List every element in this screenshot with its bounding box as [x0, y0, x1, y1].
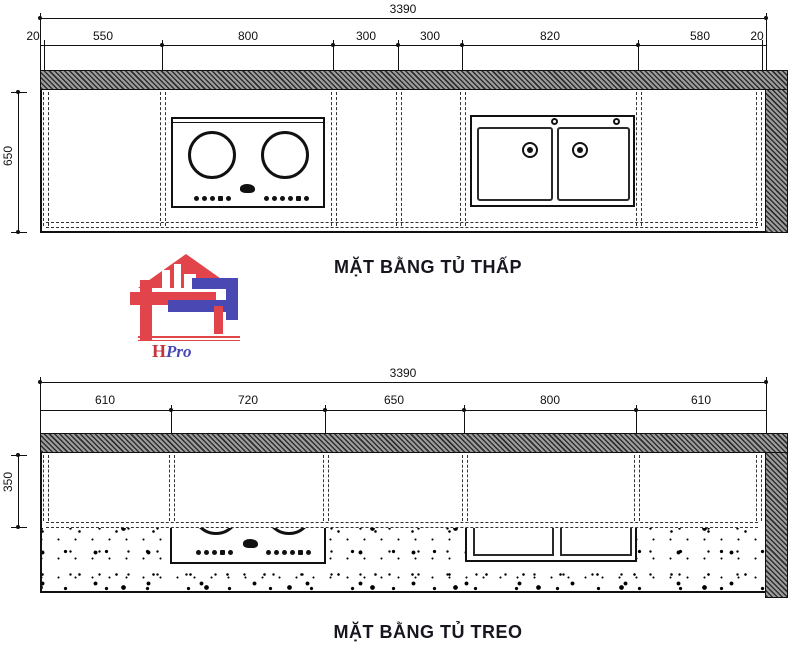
cabinet-divider — [160, 92, 166, 226]
faucet-hole — [613, 118, 620, 125]
burner-circle — [265, 528, 313, 535]
drain-center — [577, 147, 583, 153]
segment-dimension-line — [40, 410, 766, 411]
control-dot — [204, 550, 209, 555]
segment-dimension-label: 580 — [690, 30, 710, 43]
countertop-hatch-band — [40, 433, 788, 453]
extension-line — [44, 40, 45, 70]
control-dot — [202, 196, 207, 201]
cabinet-divider — [169, 455, 175, 521]
cabinet-divider — [396, 92, 402, 226]
sink-bowl — [557, 127, 630, 201]
control-dot — [280, 196, 285, 201]
cabinet-divider — [462, 455, 468, 521]
cabinet-divider — [636, 92, 642, 226]
logo-p-side — [226, 278, 238, 320]
dimension-tick — [462, 408, 466, 412]
dimension-tick — [331, 43, 335, 47]
logo-accent-bar — [214, 306, 223, 334]
logo-text-pro: Pro — [166, 342, 192, 361]
control-dot — [266, 550, 271, 555]
segment-dimension-label: 300 — [356, 30, 376, 43]
dimension-tick — [16, 453, 20, 457]
logo-p-bottom — [168, 300, 238, 312]
drawing-title-low: MẶT BẰNG TỦ THẤP — [278, 257, 578, 278]
segment-dimension-label: 610 — [95, 394, 115, 407]
segment-dimension-label: 610 — [691, 394, 711, 407]
logo-text: HPro — [152, 342, 192, 362]
control-dot — [282, 550, 287, 555]
cabinet-divider — [43, 455, 49, 521]
segment-dimension-label: 820 — [540, 30, 560, 43]
segment-dimension-line — [40, 45, 766, 46]
dimension-tick — [160, 43, 164, 47]
cabinet-divider — [323, 455, 329, 521]
dimension-tick — [764, 380, 768, 384]
control-dot — [218, 196, 223, 201]
logo-h-stem — [140, 280, 152, 340]
cabinet-divider — [634, 455, 640, 521]
logo-skyline-cutout — [162, 270, 170, 288]
control-dot — [272, 196, 277, 201]
cabinet-carcass — [40, 90, 765, 233]
control-dot — [296, 196, 301, 201]
segment-dimension-label: 720 — [238, 394, 258, 407]
cabinet-divider — [460, 92, 466, 226]
cabinet-bottom-dashed-line — [46, 222, 758, 228]
dimension-tick — [169, 408, 173, 412]
wall-cabinet-row — [40, 453, 765, 528]
height-dimension-label: 650 — [1, 146, 15, 166]
segment-dimension-label: 300 — [420, 30, 440, 43]
drain-center — [527, 147, 533, 153]
control-dot — [196, 550, 201, 555]
cabinet-divider — [756, 92, 762, 226]
segment-dimension-label: 550 — [93, 30, 113, 43]
cooktop-front-edge — [170, 528, 326, 564]
countertop-end-panel — [765, 452, 788, 598]
control-dot — [210, 196, 215, 201]
segment-dimension-label: 20 — [750, 30, 763, 43]
countertop-end-panel — [765, 89, 788, 233]
cooktop-logo-mark — [243, 539, 258, 548]
dimension-tick — [16, 525, 20, 529]
extension-line — [40, 377, 41, 433]
burner-circle — [261, 131, 309, 179]
countertop-hatch-band — [40, 70, 788, 90]
dimension-tick — [764, 16, 768, 20]
overall-dimension-line — [40, 18, 766, 19]
dimension-tick — [634, 408, 638, 412]
control-dot — [290, 550, 295, 555]
extension-line — [40, 13, 41, 70]
speckled-counter-area — [40, 528, 765, 593]
control-dot — [288, 196, 293, 201]
logo-text-h: H — [152, 341, 166, 361]
burner-circle — [188, 131, 236, 179]
logo-skyline-cutout — [174, 264, 181, 288]
dimension-tick — [38, 16, 42, 20]
segment-dimension-label: 20 — [26, 30, 39, 43]
control-dot — [194, 196, 199, 201]
dimension-tick — [396, 43, 400, 47]
sink-front-edge — [465, 528, 637, 562]
control-dot — [212, 550, 217, 555]
sink-bowl — [560, 528, 632, 556]
drawing-title-hanging: MẶT BẰNG TỦ TREO — [278, 622, 578, 643]
kitchen-cabinet-technical-drawing: 3390 20 550 800 300 300 820 580 20 — [0, 0, 800, 664]
logo-underline — [138, 336, 240, 338]
control-dot — [298, 550, 303, 555]
control-dot — [274, 550, 279, 555]
segment-dimension-label: 800 — [238, 30, 258, 43]
cabinet-divider — [331, 92, 337, 226]
overall-dimension-line — [40, 382, 766, 383]
segment-dimension-label: 650 — [384, 394, 404, 407]
segment-dimension-label: 800 — [540, 394, 560, 407]
control-dot — [306, 550, 311, 555]
cabinet-divider — [756, 455, 762, 521]
control-dot — [220, 550, 225, 555]
cabinet-divider — [43, 92, 49, 226]
cooktop-logo-mark — [240, 184, 255, 193]
sink-bowl — [477, 127, 553, 201]
control-dot — [228, 550, 233, 555]
height-dimension-line — [18, 92, 19, 233]
dimension-tick — [460, 43, 464, 47]
cooktop-edge-line — [173, 122, 323, 123]
dimension-tick — [16, 90, 20, 94]
control-dot — [226, 196, 231, 201]
overall-dimension-label: 3390 — [390, 3, 417, 16]
hpro-logo: HPro — [128, 254, 246, 358]
sink-bowl — [473, 528, 554, 556]
dimension-tick — [323, 408, 327, 412]
dimension-tick — [636, 43, 640, 47]
faucet-hole — [551, 118, 558, 125]
dimension-tick — [16, 230, 20, 234]
height-dimension-label: 350 — [1, 472, 15, 492]
dimension-tick — [38, 380, 42, 384]
height-dimension-line — [18, 455, 19, 528]
control-dot — [304, 196, 309, 201]
overall-dimension-label: 3390 — [390, 367, 417, 380]
burner-circle — [192, 528, 240, 535]
extension-line — [766, 377, 767, 433]
extension-line — [762, 40, 763, 70]
control-dot — [264, 196, 269, 201]
extension-line — [766, 13, 767, 70]
